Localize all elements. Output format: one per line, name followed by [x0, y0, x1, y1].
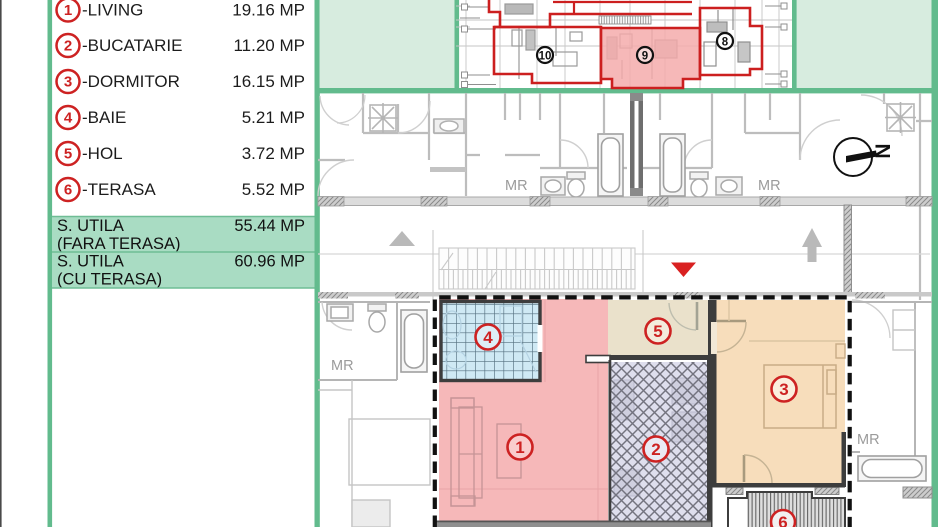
svg-text:1: 1	[515, 438, 524, 457]
svg-text:MR: MR	[758, 178, 781, 194]
svg-text:8: 8	[722, 37, 729, 49]
svg-text:5.21 MP: 5.21 MP	[242, 108, 305, 127]
svg-text:5.52 MP: 5.52 MP	[242, 180, 305, 199]
svg-text:3.72 MP: 3.72 MP	[242, 144, 305, 163]
svg-text:3: 3	[64, 74, 72, 91]
svg-text:9: 9	[642, 51, 648, 63]
svg-text:2: 2	[64, 38, 72, 55]
svg-text:6: 6	[778, 513, 787, 527]
svg-text:3: 3	[779, 380, 788, 399]
svg-text:-BUCATARIE: -BUCATARIE	[82, 36, 182, 55]
svg-text:10: 10	[539, 51, 552, 63]
svg-text:MR: MR	[857, 432, 880, 448]
svg-text:16.15 MP: 16.15 MP	[232, 72, 305, 91]
svg-text:4: 4	[483, 328, 493, 347]
svg-text:-TERASA: -TERASA	[82, 180, 156, 199]
svg-text:55.44 MP: 55.44 MP	[234, 217, 305, 235]
svg-text:5: 5	[653, 322, 662, 341]
svg-text:-BAIE: -BAIE	[82, 108, 126, 127]
svg-text:-HOL: -HOL	[82, 144, 123, 163]
svg-text:5: 5	[64, 146, 72, 163]
svg-text:MR: MR	[505, 178, 528, 194]
svg-text:(FARA TERASA): (FARA TERASA)	[57, 235, 180, 253]
svg-text:(CU TERASA): (CU TERASA)	[57, 271, 162, 289]
svg-text:N: N	[871, 144, 894, 159]
svg-text:60.96 MP: 60.96 MP	[234, 253, 305, 271]
svg-text:1: 1	[64, 2, 72, 19]
svg-text:MR: MR	[331, 358, 354, 374]
svg-text:6: 6	[64, 182, 72, 199]
svg-text:2: 2	[651, 440, 660, 459]
svg-text:-DORMITOR: -DORMITOR	[82, 72, 180, 91]
svg-text:4: 4	[64, 110, 73, 127]
svg-text:11.20 MP: 11.20 MP	[233, 36, 305, 55]
svg-text:S. UTILA: S. UTILA	[57, 217, 124, 235]
svg-text:19.16 MP: 19.16 MP	[232, 1, 305, 20]
svg-text:S. UTILA: S. UTILA	[57, 253, 124, 271]
svg-text:-LIVING: -LIVING	[82, 1, 143, 20]
